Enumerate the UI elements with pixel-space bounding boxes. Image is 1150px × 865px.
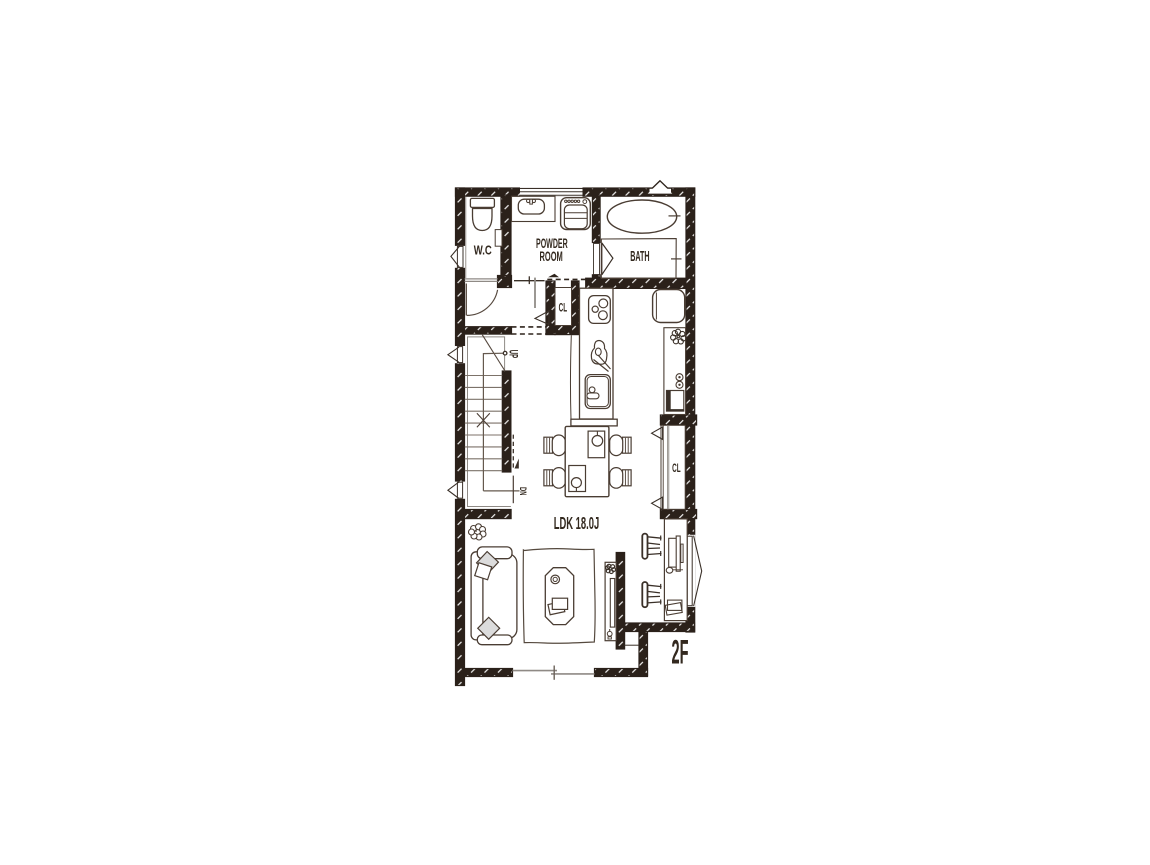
svg-text:2F: 2F	[672, 634, 689, 672]
svg-text:UP: UP	[506, 350, 520, 358]
svg-text:ROOM: ROOM	[540, 249, 563, 264]
svg-text:CL: CL	[559, 301, 568, 315]
svg-text:DN: DN	[518, 487, 528, 495]
svg-text:CL: CL	[672, 461, 681, 475]
svg-text:BATH: BATH	[630, 249, 649, 265]
svg-text:LDK 18.0J: LDK 18.0J	[554, 513, 600, 533]
svg-text:W.C: W.C	[474, 244, 492, 258]
